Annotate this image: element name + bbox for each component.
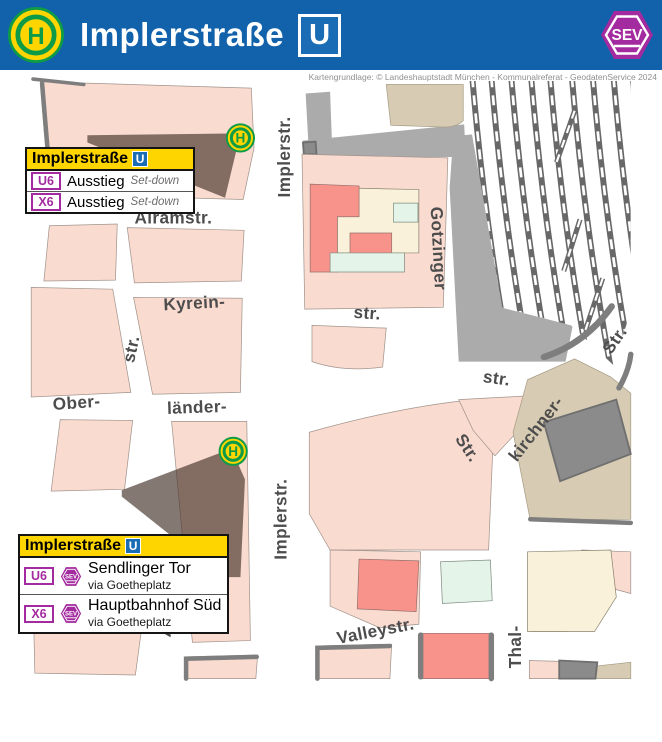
bus-stop-sign-south: H — [220, 438, 247, 465]
ubahn-badge: U — [298, 14, 341, 57]
row-text: Ausstieg — [67, 173, 125, 190]
row-note: Set-down — [131, 196, 180, 208]
callout-row: U6 SEV Sendlinger Tor via Goetheplatz — [20, 558, 227, 594]
street-label: Implerstr. — [270, 479, 290, 560]
destination-name: Sendlinger Tor — [88, 561, 191, 578]
railway-track — [633, 77, 662, 373]
street-label: Thal- — [505, 625, 525, 668]
building — [441, 560, 493, 603]
building — [386, 84, 463, 127]
callout-row: U6 Ausstieg Set-down — [27, 171, 193, 191]
railway-track — [633, 77, 662, 373]
row-note: Set-down — [131, 175, 180, 187]
sev-icon: SEV — [60, 566, 82, 587]
street-label: str. — [482, 366, 512, 390]
destination: Sendlinger Tor via Goetheplatz — [88, 561, 191, 591]
line-badge-u6: U6 — [24, 567, 54, 585]
sev-label: SEV — [611, 27, 643, 44]
building — [393, 203, 417, 222]
destination: Hauptbahnhof Süd via Goetheplatz — [88, 598, 221, 628]
callout-header: Implerstraße U — [27, 149, 193, 171]
building-block — [44, 224, 117, 281]
street-label: Kyrein- — [163, 291, 226, 314]
row-text: Ausstieg — [67, 194, 125, 211]
destination-via: via Goetheplatz — [88, 579, 191, 592]
building — [357, 559, 419, 612]
building-block — [529, 660, 559, 678]
stop-callout-north: Implerstraße U U6 Ausstieg Set-down X6 A… — [25, 147, 195, 214]
destination-via: via Goetheplatz — [88, 616, 221, 629]
callout-row: X6 Ausstieg Set-down — [27, 191, 193, 212]
stop-sign-letter: H — [236, 130, 246, 145]
street-label: länder- — [167, 396, 228, 418]
bus-stop-sign-north: H — [227, 124, 254, 151]
line-badge-x6: X6 — [24, 605, 54, 623]
bus-stop-logo: H — [5, 4, 67, 66]
transit-stop-sign: H Implerstraße U SEV Kartengrundlage: © … — [0, 0, 662, 742]
stop-logo-letter: H — [27, 23, 44, 50]
building — [330, 253, 404, 272]
street-label: Ober- — [52, 391, 101, 414]
callout-header: Implerstraße U — [20, 536, 227, 558]
sev-icon: SEV — [60, 603, 82, 624]
header-bar: H Implerstraße U SEV — [0, 0, 662, 70]
stop-sign-letter: H — [228, 444, 238, 459]
sev-logo: SEV — [599, 8, 655, 62]
building — [559, 660, 597, 678]
building — [303, 142, 317, 155]
building — [421, 633, 492, 678]
callout-title: Implerstraße — [25, 537, 121, 555]
building-block — [127, 228, 244, 283]
ubahn-badge: U — [132, 151, 148, 167]
callout-row: X6 SEV Hauptbahnhof Süd via Goetheplatz — [20, 594, 227, 631]
sev-label: SEV — [65, 574, 77, 580]
destination-name: Hauptbahnhof Süd — [88, 598, 221, 615]
street-label: str. — [353, 302, 382, 324]
street-label: Implerstr. — [274, 116, 294, 197]
line-badge-u6: U6 — [31, 172, 61, 190]
page-title: Implerstraße — [80, 16, 284, 54]
stop-callout-south: Implerstraße U U6 SEV Sendlinger Tor via… — [18, 534, 229, 634]
sev-label: SEV — [65, 612, 77, 618]
land — [306, 92, 332, 143]
callout-title: Implerstraße — [32, 150, 128, 168]
building-block — [51, 420, 133, 492]
line-badge-x6: X6 — [31, 193, 61, 211]
ubahn-badge: U — [125, 538, 141, 554]
building — [350, 233, 392, 255]
map-attribution: Kartengrundlage: © Landeshauptstadt Münc… — [309, 72, 657, 82]
building-block — [312, 325, 386, 368]
